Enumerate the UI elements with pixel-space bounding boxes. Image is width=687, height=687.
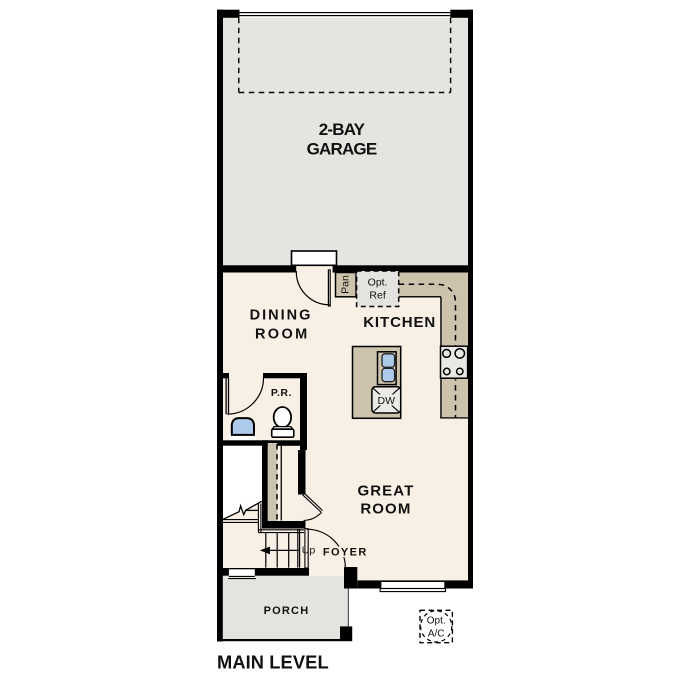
svg-text:ROOM: ROOM: [360, 501, 411, 518]
svg-text:A/C: A/C: [428, 628, 445, 639]
svg-text:Up: Up: [302, 545, 316, 557]
svg-text:FOYER: FOYER: [323, 547, 368, 559]
svg-text:KITCHEN: KITCHEN: [363, 314, 436, 331]
svg-text:Opt.: Opt.: [427, 616, 446, 627]
svg-text:Ref: Ref: [369, 289, 385, 301]
svg-text:P.R.: P.R.: [271, 387, 292, 399]
svg-text:GARAGE: GARAGE: [307, 139, 377, 158]
svg-text:Pan: Pan: [339, 275, 351, 294]
svg-text:MAIN LEVEL: MAIN LEVEL: [217, 651, 329, 672]
svg-text:PORCH: PORCH: [264, 605, 310, 617]
svg-text:ROOM: ROOM: [255, 327, 310, 343]
svg-text:2-BAY: 2-BAY: [319, 120, 366, 139]
svg-text:DINING: DINING: [250, 308, 313, 324]
svg-text:GREAT: GREAT: [357, 482, 414, 499]
svg-text:Opt.: Opt.: [368, 277, 388, 289]
svg-text:DW: DW: [378, 395, 396, 407]
